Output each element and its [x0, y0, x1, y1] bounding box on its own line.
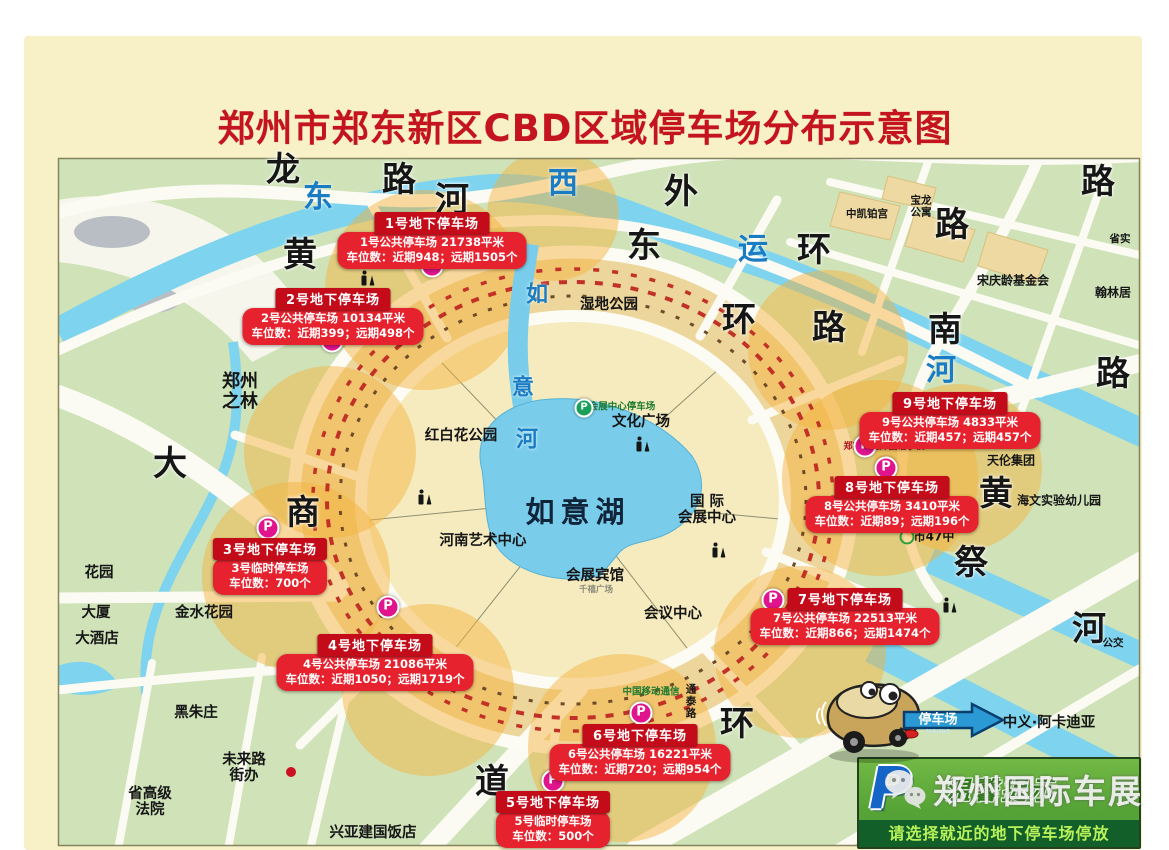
map-label: 天伦集团: [987, 454, 1035, 467]
parking-callout-body: 9号公共停车场 4833平米 车位数：近期457；远期457个: [859, 412, 1040, 449]
map-label: 金水花园: [175, 605, 233, 621]
map-label: 大: [153, 445, 187, 483]
parking-callout-title: 1号地下停车场: [375, 212, 489, 234]
parking-callout-body: 5号临时停车场 车位数：500个: [496, 811, 610, 848]
parking-callout: 2号地下停车场 2号公共停车场 10134平米 车位数：近期399；远期498个: [242, 288, 423, 345]
map-label: 祭: [954, 544, 988, 582]
parking-callout-title: 5号地下停车场: [496, 791, 610, 813]
parking-callout-line2: 车位数：近期1050；远期1719个: [285, 672, 464, 687]
map-label: 湿地公园: [580, 297, 638, 313]
parking-callout: 8号地下停车场 8号公共停车场 3410平米 车位数：近期89；远期196个: [805, 476, 978, 533]
map-label: 通 泰 路: [686, 684, 697, 719]
parking-callout-line1: 3号临时停车场: [222, 561, 318, 576]
map-label: 海文实验幼儿园: [1017, 494, 1101, 507]
parking-p-icon: P: [257, 517, 280, 540]
map-label: 路: [1081, 163, 1115, 201]
parking-p-icon: P: [377, 596, 400, 619]
map-label: 翰林居: [1095, 286, 1131, 299]
parking-callout-body: 6号公共停车场 16221平米 车位数：近期720；远期954个: [549, 744, 730, 781]
map-label: 环: [722, 301, 756, 339]
parking-callout-body: 4号公共停车场 21086平米 车位数：近期1050；远期1719个: [276, 654, 473, 691]
parking-sign-label: 停车场: [918, 712, 957, 728]
watermark-text: 郑州国际车展: [933, 765, 1143, 813]
map-label: 花园: [85, 565, 114, 581]
map-label: 如: [526, 284, 548, 309]
parking-callout-body: 2号公共停车场 10134平米 车位数：近期399；远期498个: [242, 308, 423, 345]
restroom-icon: [713, 543, 726, 558]
map-label: 未来路 街办: [222, 752, 266, 784]
parking-callout-line1: 1号公共停车场 21738平米: [346, 235, 517, 250]
poi-mark: [286, 767, 296, 777]
map-label: 龙: [266, 151, 300, 189]
map-label: 黑朱庄: [174, 705, 218, 721]
parking-callout: 1号地下停车场 1号公共停车场 21738平米 车位数：近期948；远期1505…: [337, 212, 526, 269]
map-label: 意: [512, 377, 534, 402]
map-label: 河: [1072, 610, 1106, 648]
map-label: 黄: [979, 475, 1013, 513]
map-label: 大厦: [82, 605, 111, 621]
map-label: 省高级 法院: [128, 786, 172, 818]
parking-callout-line1: 6号公共停车场 16221平米: [558, 747, 721, 762]
parking-callout-line2: 车位数：700个: [222, 576, 318, 591]
page-title: 郑州市郑东新区CBD区域停车场分布示意图: [60, 98, 1110, 152]
parking-callout-line2: 车位数：近期948；远期1505个: [346, 250, 517, 265]
parking-callout-title: 6号地下停车场: [583, 724, 697, 746]
restroom-icon: [637, 437, 650, 452]
parking-callout-line1: 5号临时停车场: [505, 814, 601, 829]
map-label: 环: [797, 231, 831, 269]
parking-callout-line1: 8号公共停车场 3410平米: [814, 499, 969, 514]
interchange-patch: [74, 216, 150, 248]
parking-p-icon: P: [630, 702, 653, 725]
parking-callout-line2: 车位数：近期866；远期1474个: [759, 626, 930, 641]
parking-callout-body: 7号公共停车场 22513平米 车位数：近期866；远期1474个: [750, 608, 939, 645]
map-label: 东: [627, 227, 661, 265]
parking-callout: 9号地下停车场 9号公共停车场 4833平米 车位数：近期457；远期457个: [859, 392, 1040, 449]
map-label: 商: [286, 494, 320, 532]
map-label: 千禧广场: [579, 586, 613, 596]
map-label: 文化广场: [612, 414, 670, 430]
parking-callout: 7号地下停车场 7号公共停车场 22513平米 车位数：近期866；远期1474…: [750, 588, 939, 645]
map-label: 郑州 之林: [222, 372, 258, 412]
parking-callout-line2: 车位数：近期89；远期196个: [814, 514, 969, 529]
map-label: 南: [928, 311, 962, 349]
wechat-icon: [884, 768, 928, 810]
parking-callout: 4号地下停车场 4号公共停车场 21086平米 车位数：近期1050；远期171…: [276, 634, 473, 691]
parking-callout-title: 9号地下停车场: [893, 392, 1007, 414]
map-label: 中国移动通信: [622, 688, 679, 699]
parking-p-icon: P: [575, 399, 594, 418]
poster-page: 郑州市郑东新区CBD区域停车场分布示意图: [0, 0, 1169, 850]
map-label: 如意湖: [525, 496, 630, 528]
map-label: 河南艺术中心: [440, 533, 527, 549]
parking-callout-line1: 7号公共停车场 22513平米: [759, 611, 930, 626]
parking-callout-title: 7号地下停车场: [788, 588, 902, 610]
parking-callout: 5号地下停车场 5号临时停车场 车位数：500个: [496, 791, 610, 848]
parking-callout-title: 2号地下停车场: [276, 288, 390, 310]
map-label: 黄: [283, 236, 317, 274]
map-label: 运: [738, 233, 768, 267]
map-label: 红白花公园: [425, 428, 498, 444]
map-label: 河: [926, 354, 956, 388]
restroom-icon: [419, 490, 432, 505]
map-label: 会展宾馆: [566, 568, 624, 584]
parking-callout: 3号地下停车场 3号临时停车场 车位数：700个: [213, 538, 327, 595]
parking-callout-line1: 4号公共停车场 21086平米: [285, 657, 464, 672]
map-label: 路: [935, 206, 969, 244]
map-label: 路: [812, 309, 846, 347]
parking-callout-line2: 车位数：近期720；远期954个: [558, 762, 721, 777]
map-label: 兴亚建国饭店: [330, 825, 417, 841]
parking-callout-title: 8号地下停车场: [835, 476, 949, 498]
parking-callout-body: 3号临时停车场 车位数：700个: [213, 558, 327, 595]
parking-callout: 6号地下停车场 6号公共停车场 16221平米 车位数：近期720；远期954个: [549, 724, 730, 781]
parking-callout-title: 4号地下停车场: [318, 634, 432, 656]
map-label: 东: [303, 181, 333, 215]
parking-callout-line2: 车位数：近期457；远期457个: [868, 430, 1031, 445]
map-label: 大酒店: [75, 631, 119, 647]
parking-callout-body: 8号公共停车场 3410平米 车位数：近期89；远期196个: [805, 496, 978, 533]
map-label: 外: [664, 173, 698, 211]
map-label: 中凯铂宫: [846, 209, 888, 221]
map-label: 省实: [1110, 234, 1131, 246]
restroom-icon: [944, 598, 957, 613]
parking-callout-line2: 车位数：500个: [505, 829, 601, 844]
map-label: 国 际 会展中心: [678, 494, 736, 526]
restroom-icon: [362, 271, 375, 286]
parking-arrow-sign: 停车场 PARKING: [902, 700, 1007, 740]
map-label: 会展中心停车场: [589, 403, 656, 414]
tip-text: 请选择就近的地下停车场停放: [859, 820, 1139, 847]
map-label: 西: [548, 167, 578, 201]
map-label: 路: [382, 161, 416, 199]
map-label: 宋庆龄基金会: [977, 274, 1049, 287]
parking-sign-sublabel: PARKING: [926, 729, 950, 735]
map-label: 河: [516, 429, 538, 454]
map-label: 宝龙 公寓: [911, 195, 932, 219]
map-label: 会议中心: [644, 606, 702, 622]
map-label: 公交: [1103, 638, 1124, 650]
map-label: 中义·阿卡迪亚: [1003, 715, 1096, 731]
parking-callout-line1: 2号公共停车场 10134平米: [251, 311, 414, 326]
parking-callout-body: 1号公共停车场 21738平米 车位数：近期948；远期1505个: [337, 232, 526, 269]
parking-callout-line1: 9号公共停车场 4833平米: [868, 415, 1031, 430]
parking-callout-title: 3号地下停车场: [213, 538, 327, 560]
parking-callout-line2: 车位数：近期399；远期498个: [251, 326, 414, 341]
map-label: 路: [1096, 355, 1130, 393]
watermark: 郑州国际车展: [884, 765, 1143, 813]
